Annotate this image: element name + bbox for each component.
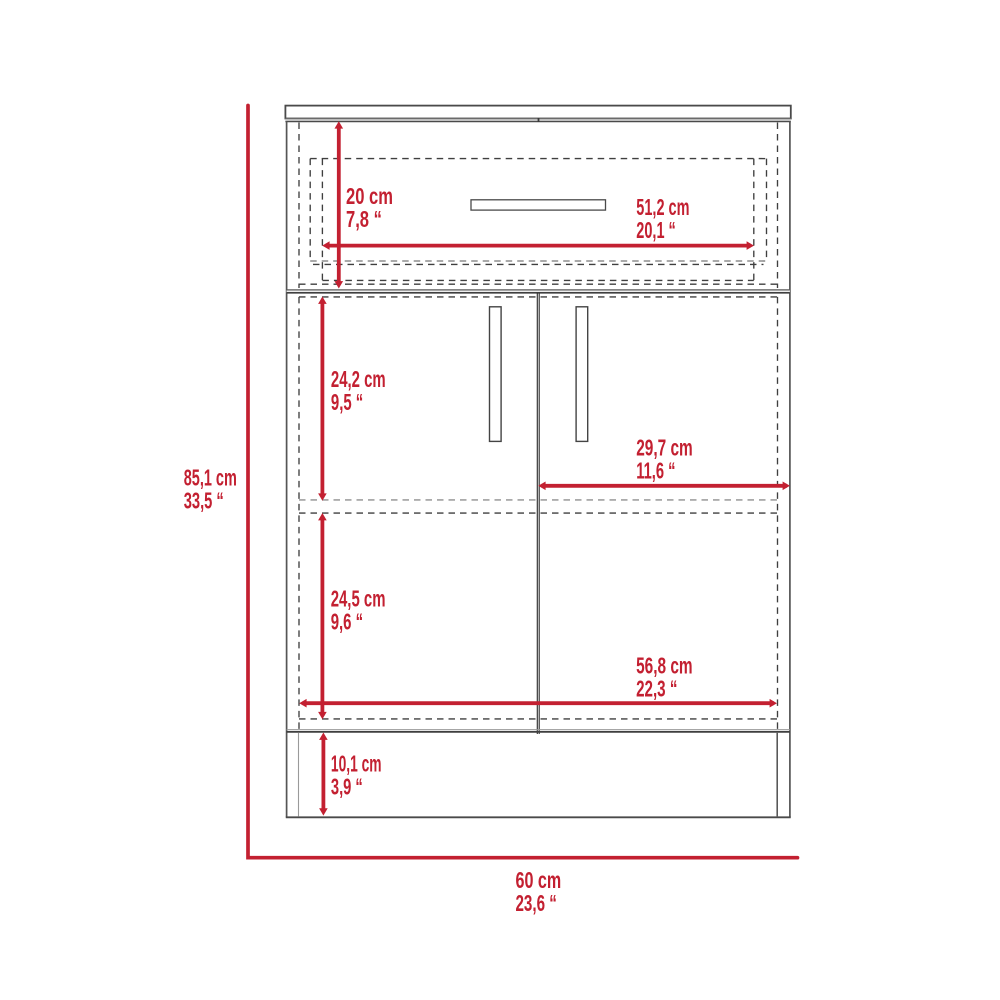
svg-text:10,1 cm: 10,1 cm [331, 752, 382, 777]
svg-text:85,1 cm: 85,1 cm [184, 467, 237, 492]
svg-text:3,9 “: 3,9 “ [331, 776, 363, 801]
svg-text:23,6 “: 23,6 “ [516, 891, 557, 917]
svg-text:20 cm: 20 cm [346, 184, 393, 209]
svg-text:51,2 cm: 51,2 cm [636, 196, 689, 221]
svg-text:7,8 “: 7,8 “ [346, 207, 382, 232]
svg-text:29,7 cm: 29,7 cm [636, 435, 693, 461]
svg-text:9,5 “: 9,5 “ [331, 390, 363, 416]
svg-text:9,6 “: 9,6 “ [331, 609, 363, 635]
svg-text:11,6 “: 11,6 “ [636, 459, 675, 484]
svg-text:33,5 “: 33,5 “ [184, 490, 224, 515]
svg-text:22,3 “: 22,3 “ [636, 676, 677, 702]
svg-text:20,1 “: 20,1 “ [636, 219, 675, 244]
